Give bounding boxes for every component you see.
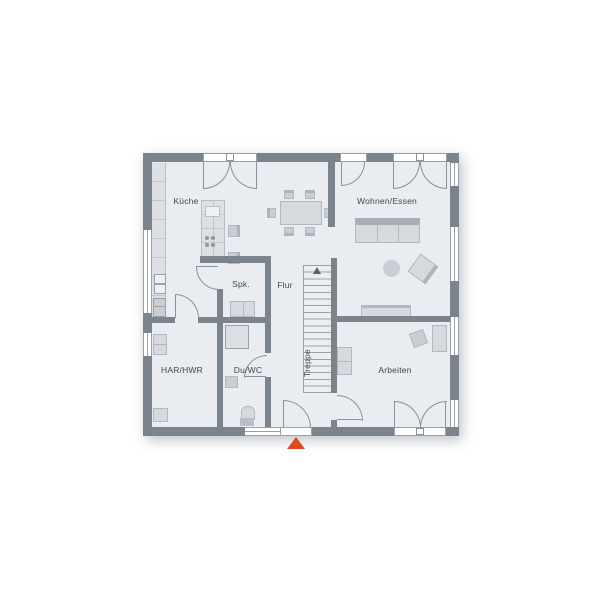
room-label-spk: Spk.: [224, 279, 258, 289]
utility-wall-top: [152, 317, 175, 323]
cooktop-burner: [211, 236, 215, 240]
door-marker: [416, 153, 424, 161]
outer-wall-right: [450, 153, 459, 163]
outer-wall-left: [143, 313, 152, 333]
outer-wall-bottom: [446, 427, 459, 436]
outer-wall-right: [450, 281, 459, 317]
washbasin: [225, 376, 238, 388]
window: [450, 400, 459, 428]
kitchen-counter: [152, 163, 166, 318]
stair-wall-stub: [331, 420, 337, 430]
room-label-treppe: Treppe: [301, 336, 314, 390]
wall-living-office: [337, 316, 450, 322]
toilet-tank: [240, 418, 254, 426]
entrance-marker-icon: [287, 437, 305, 449]
cooktop-burner: [211, 243, 215, 247]
stairs-direction-arrow-icon: [313, 267, 321, 274]
island-sink: [205, 206, 220, 217]
window: [245, 427, 280, 436]
outer-wall-right: [450, 355, 459, 400]
coffee-table: [383, 260, 400, 277]
window: [143, 230, 152, 313]
utility-wall-top: [198, 317, 271, 323]
stair-wall: [331, 258, 337, 393]
outer-wall-left: [143, 356, 152, 436]
outer-wall-right: [450, 186, 459, 227]
room-label-kueche: Küche: [160, 196, 212, 206]
dining-chair: [305, 190, 315, 199]
desk: [432, 325, 447, 352]
door-marker: [416, 428, 424, 435]
room-label-flur: Flur: [270, 280, 300, 290]
dining-chair: [267, 208, 276, 218]
door-marker: [226, 153, 234, 161]
entrance-opening: [280, 427, 312, 436]
kitchen-sink: [154, 274, 166, 284]
window: [450, 227, 459, 281]
hall-wall: [265, 377, 271, 427]
room-label-wohnen-essen: Wohnen/Essen: [348, 196, 426, 206]
outer-wall-bottom: [312, 427, 394, 436]
floor-plan: Küche Wohnen/Essen Spk. Flur Treppe HAR/…: [0, 0, 600, 600]
cooktop-burner: [205, 243, 209, 247]
utility-bath-wall: [217, 323, 223, 427]
outer-wall-left: [143, 153, 152, 230]
room-label-arbeiten: Arbeiten: [365, 365, 425, 375]
window: [450, 163, 459, 186]
utility-cabinet: [153, 408, 168, 422]
wall-spur: [328, 162, 335, 227]
door-opening: [340, 153, 367, 162]
room-label-har-hwr: HAR/HWR: [152, 365, 212, 375]
cooktop-burner: [205, 236, 209, 240]
kitchen-sink: [154, 284, 166, 294]
outer-wall-top: [257, 153, 340, 162]
pantry-shelf: [230, 301, 255, 317]
room-label-du-wc: Du/WC: [224, 365, 272, 375]
outer-wall-bottom: [143, 427, 245, 436]
window: [450, 317, 459, 355]
shower: [225, 325, 249, 349]
hall-wall: [265, 263, 271, 353]
bar-stool: [228, 225, 240, 237]
washing-machine: [153, 334, 167, 355]
window: [143, 333, 152, 356]
dining-chair: [305, 227, 315, 236]
pantry-wall-top: [200, 256, 271, 263]
sofa: [355, 218, 420, 243]
bookshelf: [337, 347, 352, 375]
kitchen-appliance: [153, 298, 166, 317]
dining-chair: [284, 190, 294, 199]
outer-wall-top: [367, 153, 393, 162]
dining-table: [280, 201, 322, 225]
dining-chair: [284, 227, 294, 236]
outer-wall-top: [143, 153, 203, 162]
